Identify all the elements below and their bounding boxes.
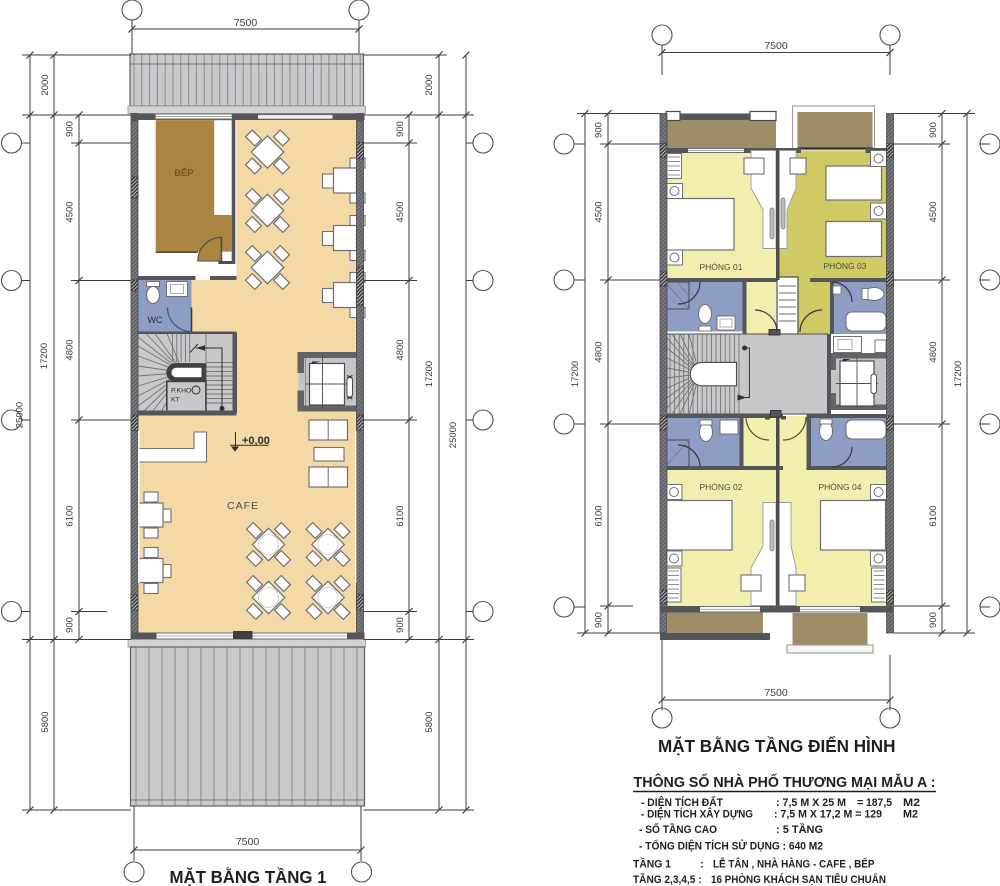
svg-text:17200: 17200 xyxy=(570,361,581,387)
svg-text:17200: 17200 xyxy=(424,361,435,387)
svg-text:- TỔNG DIỆN TÍCH SỬ DỤNG : 640: - TỔNG DIỆN TÍCH SỬ DỤNG : 640 M2 xyxy=(639,840,823,853)
svg-text:6100: 6100 xyxy=(65,505,76,526)
svg-text:MẶT BẰNG TẦNG ĐIỂN HÌNH: MẶT BẰNG TẦNG ĐIỂN HÌNH xyxy=(658,735,896,756)
svg-text:7500: 7500 xyxy=(234,17,258,29)
svg-text:: 7,5 M X 17,2 M = 129: : 7,5 M X 17,2 M = 129 xyxy=(774,809,882,821)
svg-text:25000: 25000 xyxy=(448,422,459,448)
svg-text:- DIỆN TÍCH ĐẤT: - DIỆN TÍCH ĐẤT xyxy=(641,796,723,809)
svg-text:17200: 17200 xyxy=(39,343,50,369)
svg-text::: : xyxy=(700,859,704,871)
svg-text:5800: 5800 xyxy=(424,711,435,732)
svg-text:CAFE: CAFE xyxy=(227,500,259,512)
svg-text:6100: 6100 xyxy=(928,505,939,526)
svg-text:P.KHO: P.KHO xyxy=(171,388,191,395)
svg-text:900: 900 xyxy=(395,121,406,137)
svg-text:7500: 7500 xyxy=(236,836,260,848)
svg-text:PHÒNG 01: PHÒNG 01 xyxy=(700,262,743,272)
svg-text:900: 900 xyxy=(594,612,605,628)
svg-text:PHÒNG 03: PHÒNG 03 xyxy=(824,261,867,271)
svg-text:4800: 4800 xyxy=(594,341,605,362)
svg-text:900: 900 xyxy=(65,121,76,137)
svg-text:4500: 4500 xyxy=(594,201,605,222)
svg-text:900: 900 xyxy=(65,617,76,633)
svg-text:- DIỆN TÍCH XÂY DỰNG: - DIỆN TÍCH XÂY DỰNG xyxy=(641,808,753,821)
svg-text:LỄ TÂN , NHÀ HÀNG - CAFE , BẾP: LỄ TÂN , NHÀ HÀNG - CAFE , BẾP xyxy=(713,858,875,871)
svg-text:TẦNG 2,3,4,5 :: TẦNG 2,3,4,5 : xyxy=(633,873,702,886)
svg-text:PHÒNG 04: PHÒNG 04 xyxy=(819,482,862,492)
svg-text:4500: 4500 xyxy=(395,201,406,222)
svg-text:900: 900 xyxy=(594,122,605,138)
svg-text:4800: 4800 xyxy=(395,339,406,360)
svg-text:187,5: 187,5 xyxy=(866,797,892,809)
svg-text:2000: 2000 xyxy=(40,74,51,95)
svg-text:: 7,5 M X 25 M: : 7,5 M X 25 M xyxy=(776,797,846,809)
svg-text:4500: 4500 xyxy=(65,201,76,222)
svg-text:6100: 6100 xyxy=(594,505,605,526)
svg-text:: 5 TẦNG: : 5 TẦNG xyxy=(776,823,823,836)
svg-text:WC: WC xyxy=(148,315,163,325)
svg-text:5800: 5800 xyxy=(40,711,51,732)
svg-text:17200: 17200 xyxy=(953,361,964,387)
svg-text:900: 900 xyxy=(928,122,939,138)
svg-text:900: 900 xyxy=(395,617,406,633)
svg-text:MẶT BẰNG TẦNG 1: MẶT BẰNG TẦNG 1 xyxy=(170,866,327,886)
svg-text:4800: 4800 xyxy=(65,339,76,360)
svg-text:7500: 7500 xyxy=(764,40,788,52)
svg-text:=: = xyxy=(857,797,863,809)
svg-text:7500: 7500 xyxy=(764,687,788,699)
svg-text:900: 900 xyxy=(928,612,939,628)
svg-text:BẾP: BẾP xyxy=(174,168,193,179)
svg-text:THÔNG SỐ NHÀ PHỐ THƯƠNG MẠI MẪ: THÔNG SỐ NHÀ PHỐ THƯƠNG MẠI MẪU A : xyxy=(634,773,936,791)
svg-text:2000: 2000 xyxy=(424,74,435,95)
svg-text:25000: 25000 xyxy=(15,402,26,428)
svg-text:- SỐ TẦNG CAO: - SỐ TẦNG CAO xyxy=(639,822,717,836)
svg-text:4800: 4800 xyxy=(928,341,939,362)
svg-text:16 PHÒNG KHÁCH SẠN TIÊU CHUẨN: 16 PHÒNG KHÁCH SẠN TIÊU CHUẨN xyxy=(711,873,886,886)
svg-text:PHÒNG 02: PHÒNG 02 xyxy=(700,482,743,492)
svg-text:KT: KT xyxy=(171,397,180,404)
svg-text:M2: M2 xyxy=(903,797,920,809)
svg-text:4500: 4500 xyxy=(928,201,939,222)
svg-text:M2: M2 xyxy=(903,809,918,821)
svg-text:TẦNG 1: TẦNG 1 xyxy=(633,858,671,871)
svg-text:6100: 6100 xyxy=(395,505,406,526)
